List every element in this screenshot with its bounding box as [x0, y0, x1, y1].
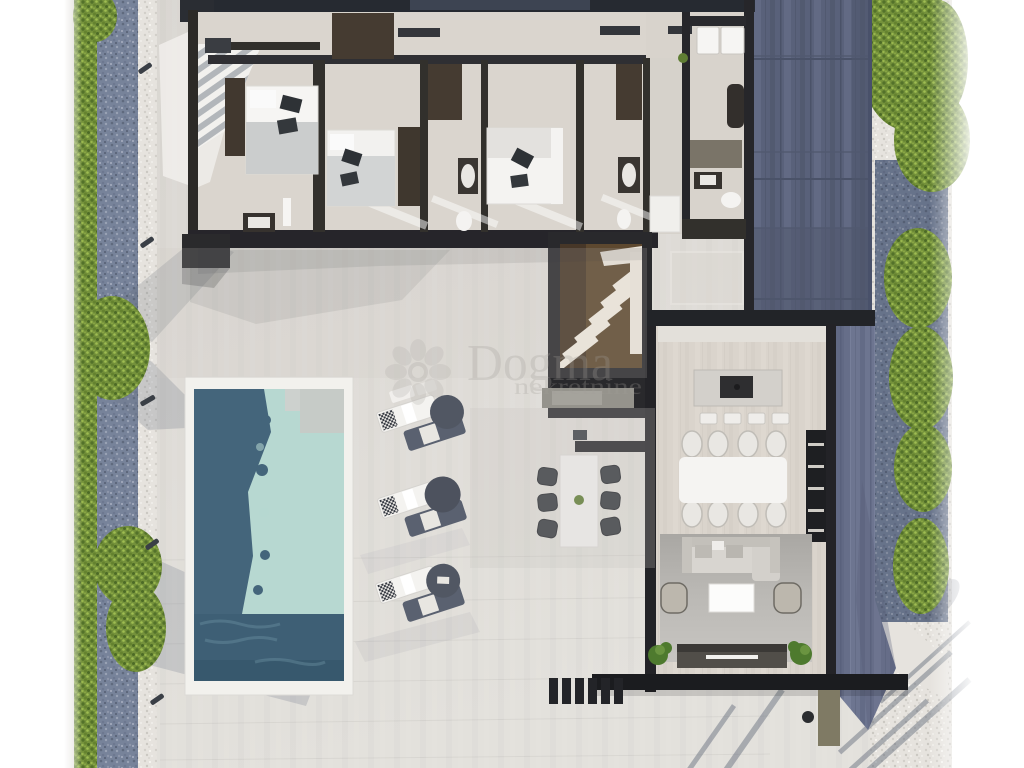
svg-text:nekretnine: nekretnine [514, 374, 642, 399]
